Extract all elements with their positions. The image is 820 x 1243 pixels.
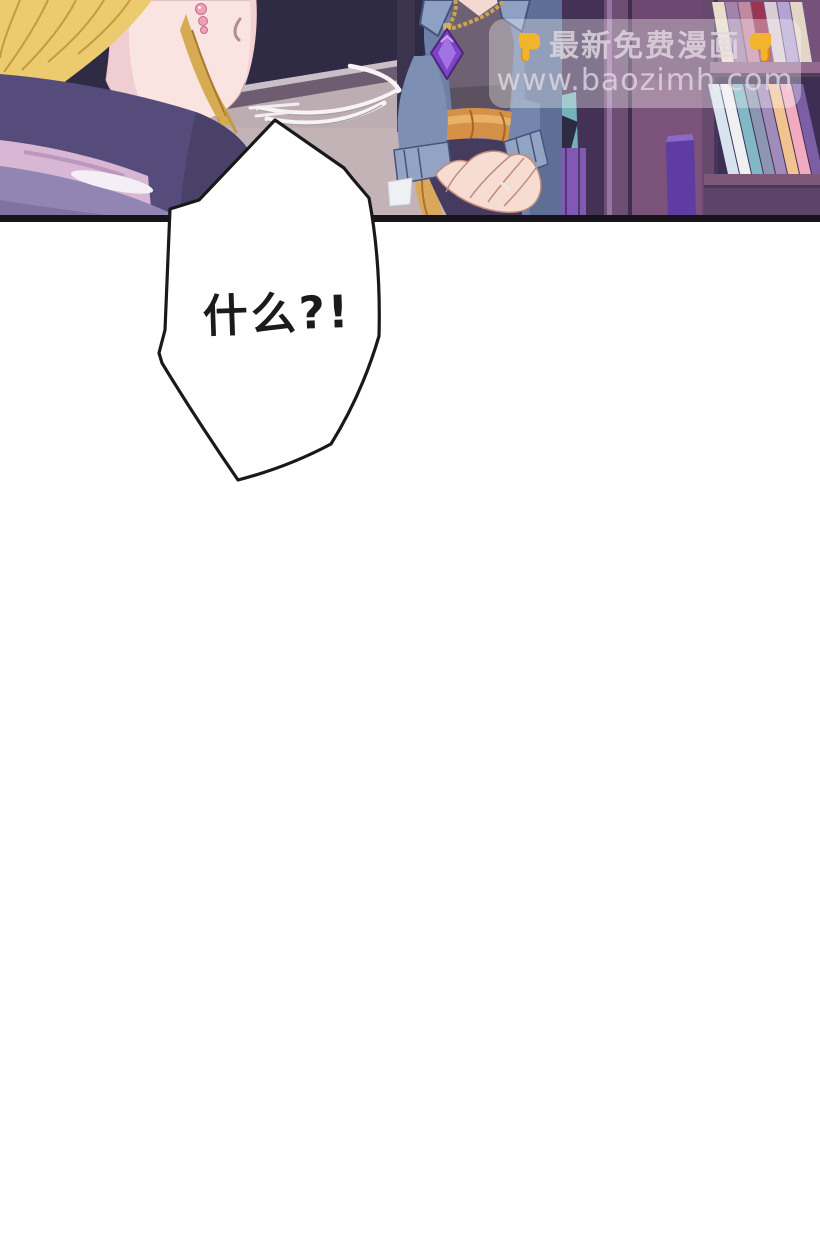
- point-down-icon: [748, 32, 777, 63]
- purple-book: [666, 140, 696, 218]
- blonde-character: [0, 0, 262, 218]
- speech-bubble-text: 什么?!: [202, 275, 353, 345]
- watermark-line1: 最新免费漫画: [513, 30, 777, 64]
- watermark-text: 最新免费漫画: [549, 30, 741, 64]
- comic-page: 最新免费漫画 www.baozimh.com 什么?!: [0, 0, 820, 1243]
- point-down-icon: [513, 32, 542, 63]
- watermark: 最新免费漫画 www.baozimh.com: [489, 19, 801, 108]
- panel-border: [0, 215, 820, 222]
- watermark-url: www.baozimh.com: [496, 65, 793, 97]
